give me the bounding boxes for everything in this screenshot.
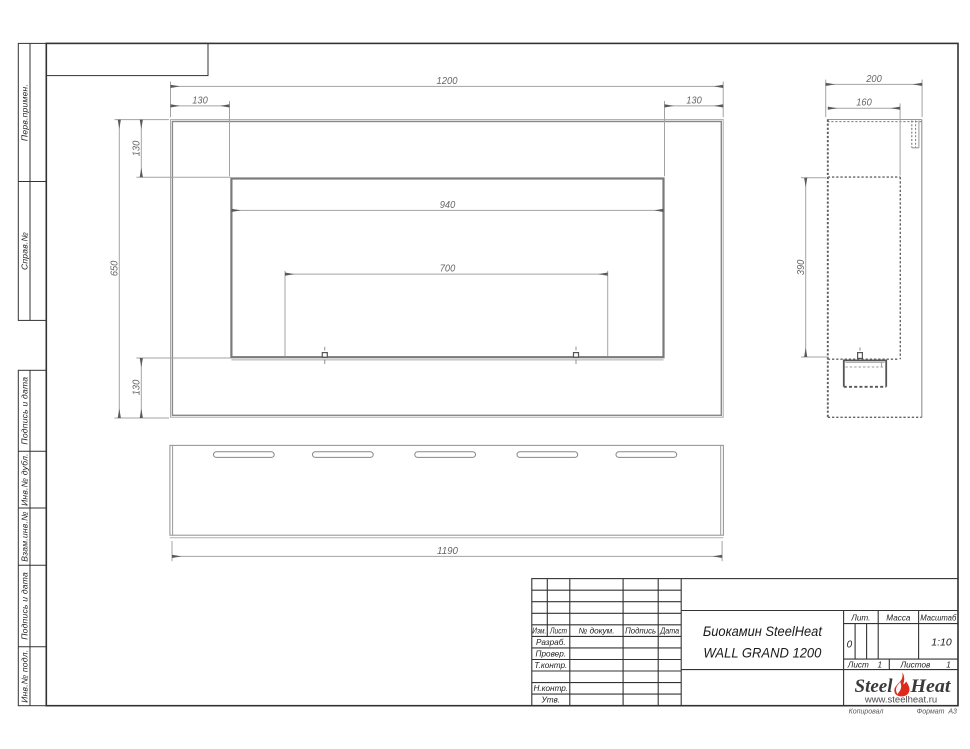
svg-text:130: 130 [131, 380, 143, 396]
svg-text:1190: 1190 [437, 545, 458, 557]
svg-text:130: 130 [131, 141, 143, 157]
svg-text:1200: 1200 [437, 75, 458, 87]
svg-text:Лит.: Лит. [850, 614, 870, 623]
svg-text:650: 650 [109, 261, 121, 277]
svg-text:Провер.: Провер. [536, 650, 567, 659]
svg-text:Подпись и дата: Подпись и дата [19, 377, 29, 445]
svg-text:200: 200 [865, 73, 882, 85]
svg-text:Инв.№ подл.: Инв.№ подл. [19, 650, 29, 703]
svg-text:Копировал: Копировал [849, 709, 884, 716]
svg-text:Дата: Дата [659, 627, 679, 636]
svg-text:1: 1 [878, 661, 883, 670]
svg-text:Инв.№ дубл.: Инв.№ дубл. [19, 453, 29, 506]
svg-text:Подпись и дата: Подпись и дата [19, 572, 29, 640]
svg-text:1: 1 [946, 661, 951, 670]
svg-text:Изм.: Изм. [532, 627, 546, 636]
svg-text:Справ.№: Справ.№ [19, 232, 29, 270]
svg-text:Листов: Листов [899, 661, 931, 670]
svg-text:700: 700 [440, 263, 456, 275]
svg-text:940: 940 [440, 199, 456, 211]
svg-text:№ докум.: № докум. [578, 627, 614, 636]
svg-text:Н.контр.: Н.контр. [533, 684, 568, 693]
svg-text:Разраб.: Разраб. [536, 638, 566, 647]
svg-text:WALL GRAND 1200: WALL GRAND 1200 [703, 645, 821, 661]
svg-text:Т.контр.: Т.контр. [534, 661, 567, 670]
svg-text:130: 130 [192, 94, 208, 106]
svg-text:Масса: Масса [886, 614, 911, 623]
svg-text:Взам.инв.№: Взам.инв.№ [19, 511, 29, 561]
svg-text:160: 160 [856, 97, 872, 109]
svg-text:Утв.: Утв. [540, 696, 560, 705]
svg-text:Биокамин SteelHeat: Биокамин SteelHeat [703, 623, 823, 639]
svg-text:Подпись: Подпись [625, 627, 656, 636]
svg-text:Формат А3: Формат А3 [917, 709, 957, 716]
svg-text:130: 130 [686, 94, 702, 106]
svg-text:Перв.примен.: Перв.примен. [19, 84, 29, 141]
svg-text:0: 0 [847, 640, 853, 651]
svg-text:Масштаб: Масштаб [920, 614, 956, 623]
svg-text:390: 390 [795, 260, 807, 276]
svg-text:Лист: Лист [847, 661, 869, 670]
svg-text:1:10: 1:10 [931, 637, 952, 649]
svg-text:Лист: Лист [549, 627, 567, 636]
svg-text:www.steelheat.ru: www.steelheat.ru [864, 694, 937, 705]
